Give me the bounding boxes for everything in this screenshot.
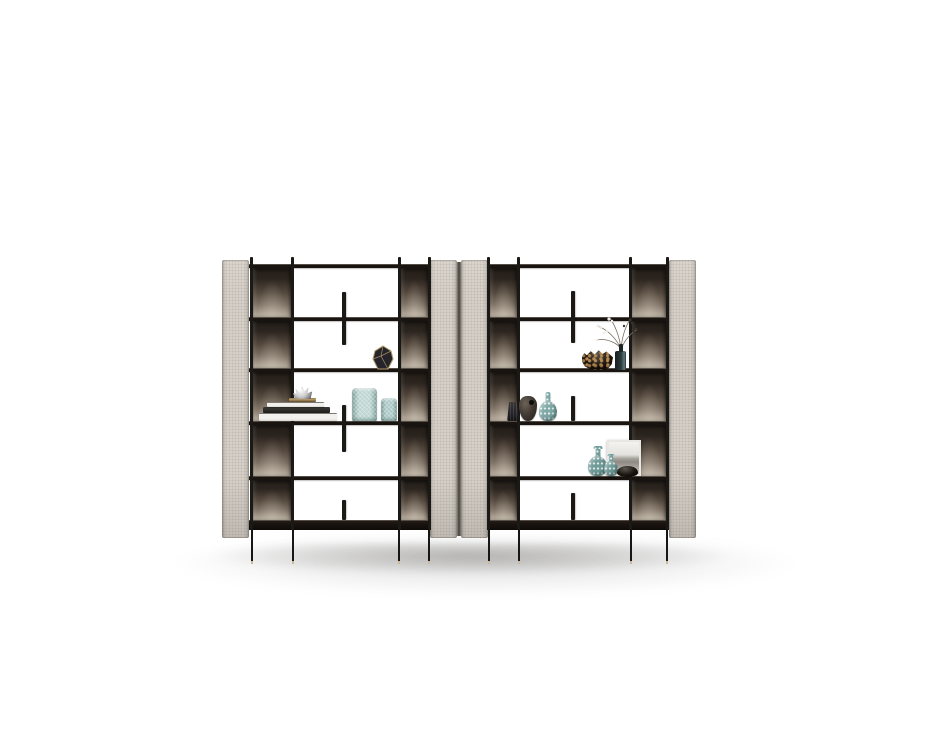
brass-foot	[630, 561, 632, 564]
bronze-panel	[401, 480, 428, 520]
leg	[488, 530, 490, 561]
bronze-panel	[632, 268, 666, 317]
bronze-panel	[253, 321, 291, 368]
bronze-panel	[632, 372, 666, 421]
side-panel-outer-left	[222, 260, 249, 538]
shelf	[249, 264, 431, 268]
fin-divider	[571, 291, 575, 343]
shelf	[487, 476, 669, 480]
side-panel-inner-right	[461, 260, 488, 538]
shelf	[487, 421, 669, 425]
leopard-bowl	[582, 349, 613, 370]
vessel-hole	[529, 400, 534, 405]
brass-foot	[488, 561, 490, 564]
brass-foot	[398, 561, 400, 564]
brass-foot	[518, 561, 520, 564]
floor-contact-shadow	[210, 543, 730, 575]
bronze-panel	[401, 425, 428, 476]
shelf	[487, 368, 669, 372]
frame-post	[487, 257, 490, 530]
book	[263, 407, 330, 413]
speckled-vase-small	[604, 454, 618, 476]
book	[259, 413, 337, 421]
brass-foot	[251, 561, 253, 564]
bronze-panel	[401, 321, 428, 368]
bronze-panel	[253, 268, 291, 317]
frame-post	[398, 257, 401, 530]
product-photo	[0, 0, 950, 733]
frame-post	[517, 257, 520, 530]
ribbed-vase-large	[352, 388, 377, 421]
fin-divider	[342, 500, 346, 520]
fin-divider	[571, 396, 575, 421]
faceted-vase	[372, 345, 394, 370]
base-shelf	[487, 520, 669, 530]
fin-divider	[342, 405, 346, 452]
brass-foot	[666, 561, 668, 564]
black-bowl	[617, 466, 638, 477]
shelf	[487, 317, 669, 321]
bronze-panel	[253, 425, 291, 476]
leg	[292, 530, 294, 561]
bronze-panel	[490, 480, 517, 520]
shelf	[249, 421, 431, 425]
fin-divider	[571, 493, 575, 520]
frame-post	[250, 257, 253, 530]
leg	[398, 530, 400, 561]
vase-body	[604, 461, 618, 476]
frame-post	[666, 257, 669, 530]
shelf	[249, 368, 431, 372]
leg	[251, 530, 253, 561]
silver-ornament	[293, 386, 313, 399]
bronze-panel	[253, 480, 291, 520]
frame-post	[428, 257, 431, 530]
shelf	[249, 476, 431, 480]
ribbed-vase-small	[381, 398, 397, 421]
speckled-bottle	[539, 392, 557, 421]
leg	[518, 530, 520, 561]
leg	[666, 530, 668, 561]
frame-post	[629, 257, 632, 530]
bronze-panel	[401, 372, 428, 421]
side-panel-outer-right	[669, 260, 696, 538]
leg	[630, 530, 632, 561]
bronze-panel	[401, 268, 428, 317]
shelf	[487, 264, 669, 268]
side-panel-inner-left	[430, 260, 457, 538]
bronze-panel	[490, 268, 517, 317]
shelf	[249, 317, 431, 321]
bronze-panel	[490, 425, 517, 476]
dried-flower-sprigs	[594, 316, 638, 350]
bronze-panel	[632, 480, 666, 520]
fin-divider	[342, 292, 346, 345]
glass-bottle	[615, 351, 626, 370]
brass-foot	[292, 561, 294, 564]
bottle-neck	[619, 344, 623, 352]
bronze-panel	[490, 321, 517, 368]
gourd-vessel	[519, 396, 537, 421]
brass-foot	[428, 561, 430, 564]
bottle-body	[539, 401, 557, 421]
book	[267, 402, 324, 407]
leg	[428, 530, 430, 561]
base-shelf	[249, 520, 431, 530]
